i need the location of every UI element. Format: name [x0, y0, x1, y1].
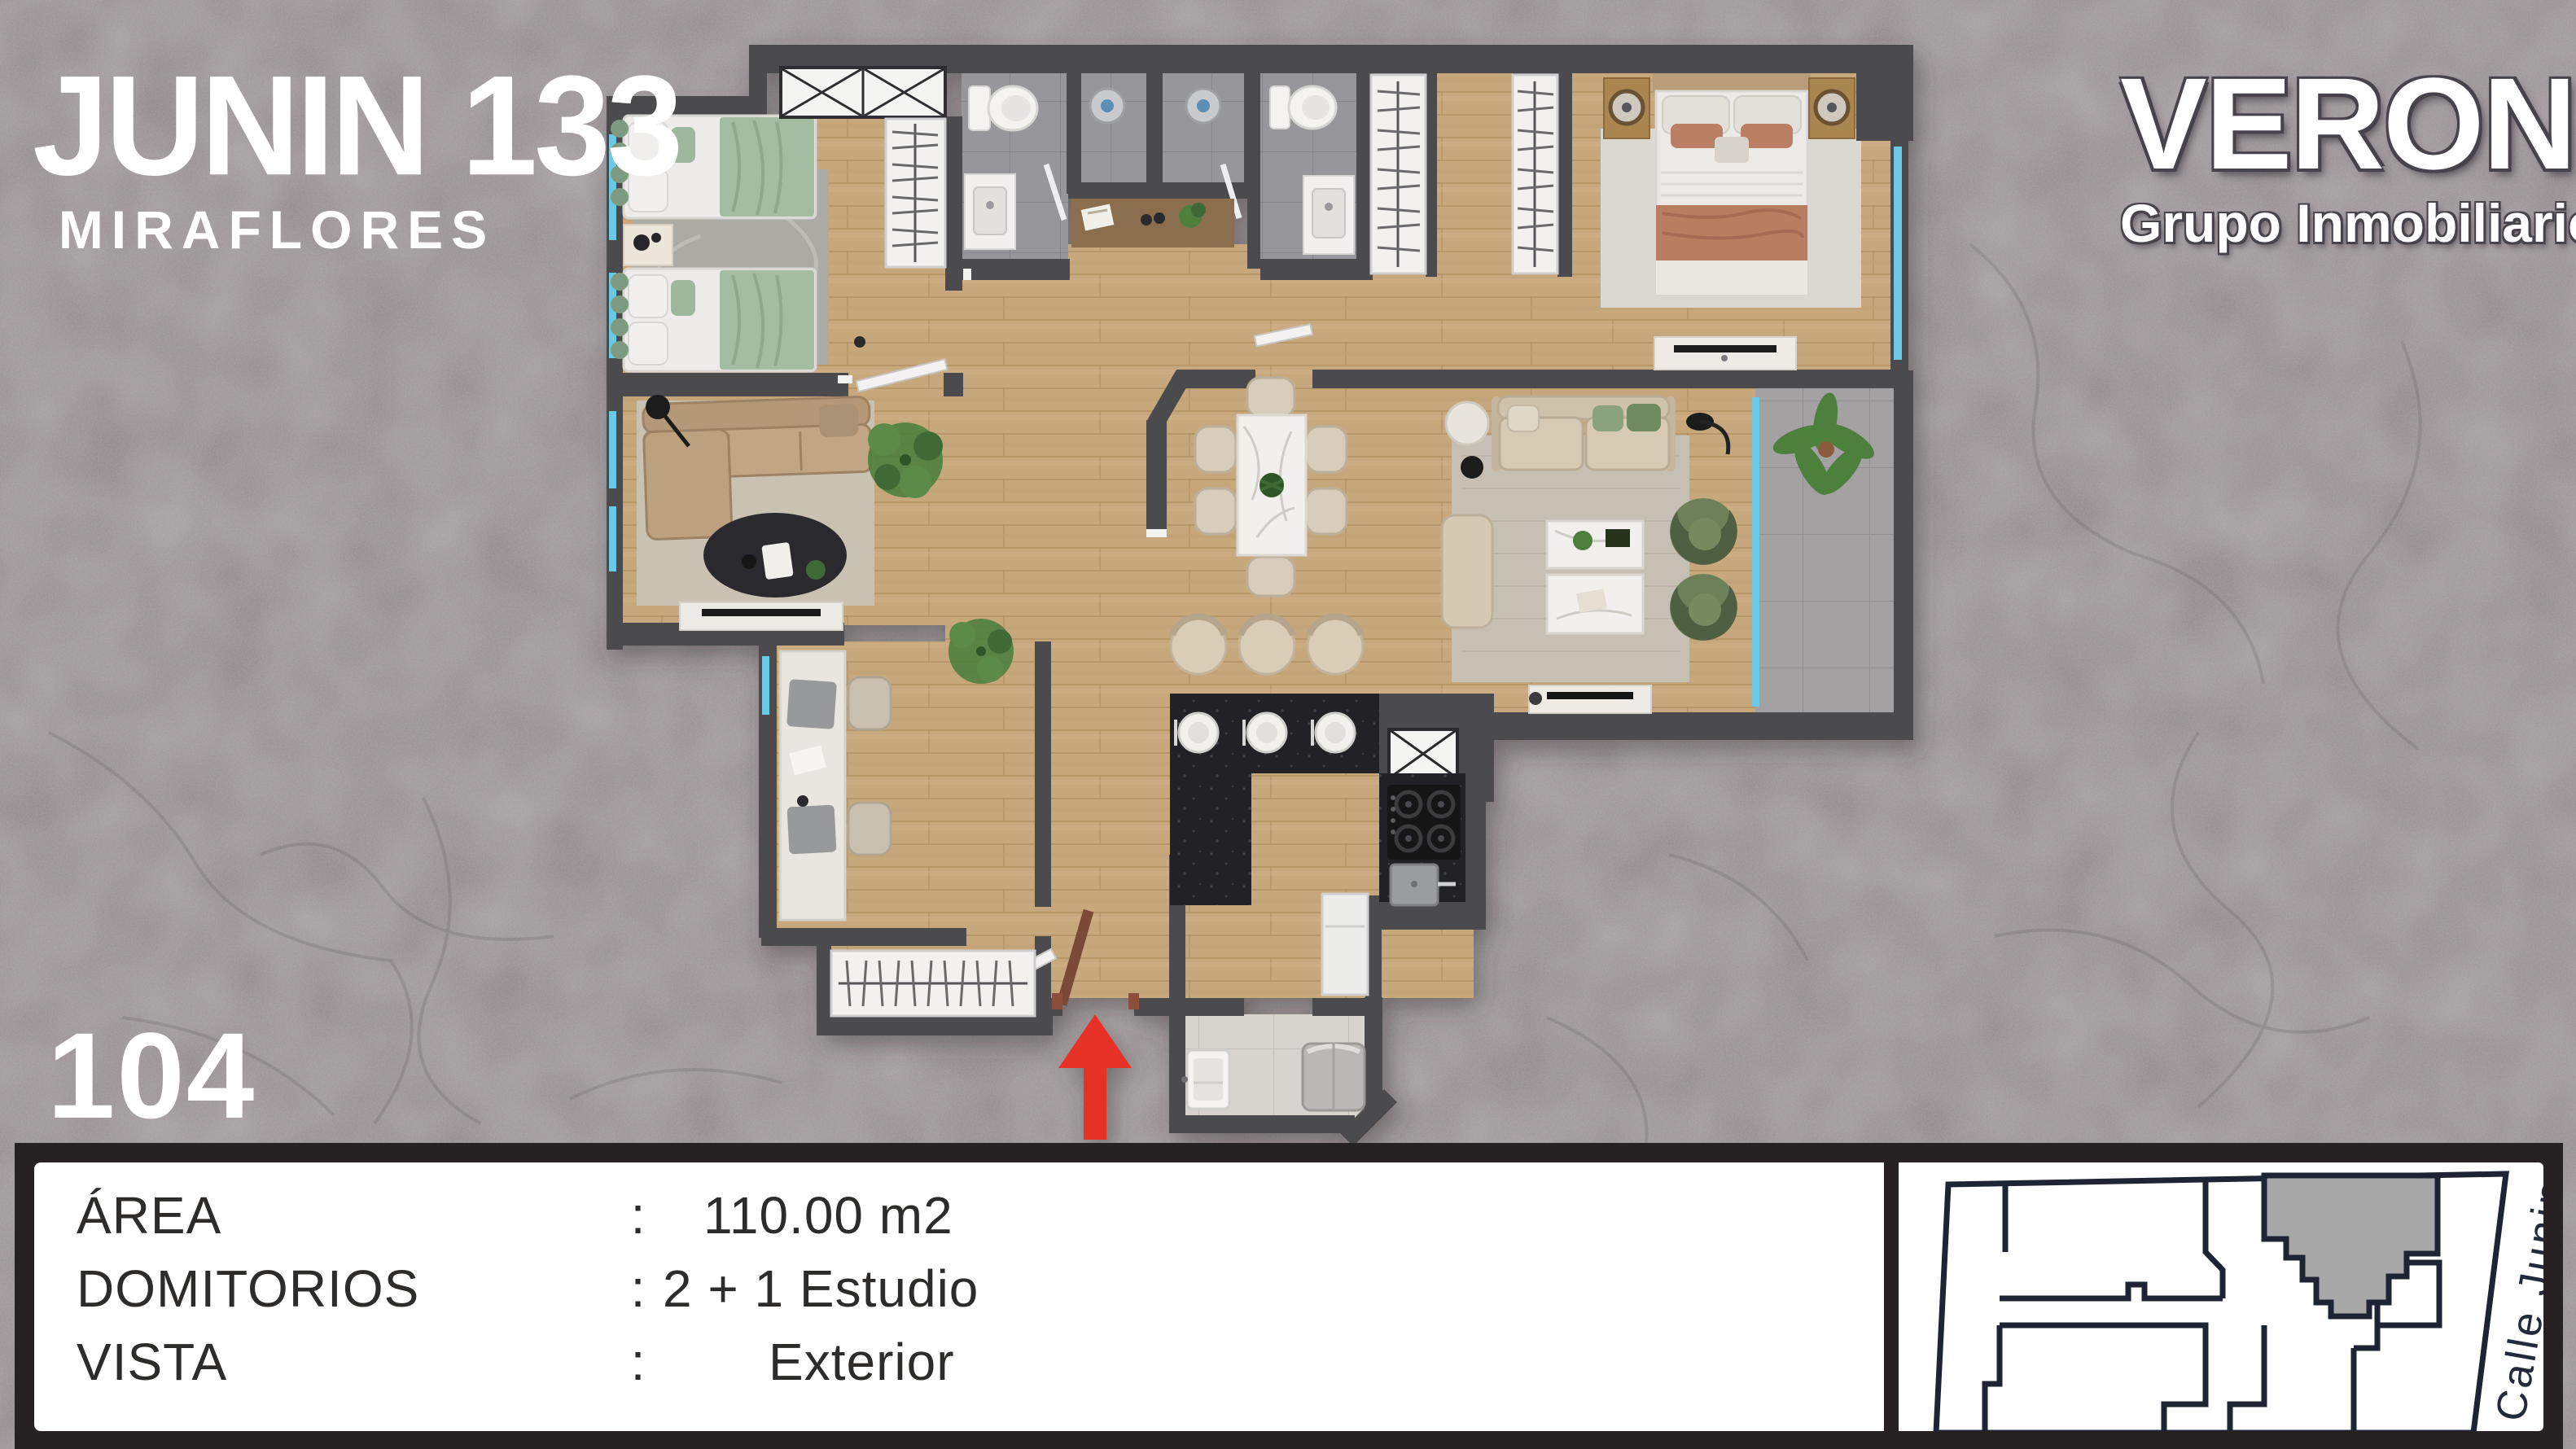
terrace-glass-door [1752, 397, 1759, 707]
dining-chair [1247, 557, 1295, 596]
stove-icon [1387, 785, 1461, 860]
washing-machine [1303, 1044, 1365, 1110]
detail-separator: : [614, 1185, 663, 1245]
fridge [1322, 894, 1368, 995]
coat-closet [831, 951, 1035, 1016]
project-location: MIRAFLORES [33, 199, 521, 260]
unit-number: 104 [47, 1005, 256, 1146]
detail-value: 110.00 m2 [703, 1185, 953, 1245]
keyplan-drawing: Calle Junin [1899, 1162, 2543, 1431]
place-setting [1176, 713, 1355, 752]
detail-value: 2 + 1 Estudio [663, 1259, 979, 1319]
dining-chair [1195, 488, 1236, 534]
toilet-icon [969, 86, 1037, 130]
sofa [1492, 396, 1676, 471]
tv-console [680, 602, 843, 630]
coffee-table [1547, 521, 1643, 633]
bedroom-wardrobe [781, 68, 945, 117]
info-panel: ÁREA : 110.00 m2 DOMITORIOS : 2 + 1 Estu… [34, 1162, 1884, 1431]
shower-head-icon [1090, 89, 1124, 123]
detail-row-area: ÁREA : 110.00 m2 [77, 1185, 979, 1259]
detail-label: DOMITORIOS [77, 1259, 614, 1319]
project-logo: JUNIN 133 MIRAFLORES [33, 57, 521, 260]
keyplan-unit-highlight [2264, 1175, 2438, 1316]
side-table [1446, 402, 1488, 444]
nightstand [1604, 78, 1649, 138]
company-logo: VERONÉS Grupo Inmobiliario [2120, 59, 2527, 254]
company-tagline: Grupo Inmobiliario [2120, 192, 2527, 254]
dressing-niche [1071, 199, 1234, 247]
master-window [1894, 147, 1902, 360]
detail-row-bedrooms: DOMITORIOS : 2 + 1 Estudio [77, 1259, 979, 1332]
dining-table [1238, 415, 1306, 555]
bath-vanity [965, 174, 1015, 249]
desk-chair [848, 677, 891, 729]
tv-console [1529, 685, 1651, 713]
master-bed [1653, 73, 1811, 295]
toilet-icon [1270, 86, 1336, 129]
info-panel-frame: ÁREA : 110.00 m2 DOMITORIOS : 2 + 1 Estu… [15, 1143, 2563, 1449]
detail-label: ÁREA [77, 1185, 614, 1245]
company-name: VERONÉS [2120, 59, 2527, 189]
detail-label: VISTA [77, 1332, 614, 1392]
dining-chair [1195, 427, 1236, 472]
tv-console [1654, 337, 1796, 370]
street-label: Calle Junin [2487, 1175, 2543, 1425]
detail-separator: : [614, 1259, 663, 1319]
keyplan: Calle Junin [1899, 1162, 2543, 1431]
desk-chair [848, 803, 891, 855]
bedroom-closet-rack [886, 119, 945, 267]
plant-icon [948, 619, 1014, 684]
bar-stool [1171, 616, 1226, 674]
unit-details: ÁREA : 110.00 m2 DOMITORIOS : 2 + 1 Estu… [77, 1185, 979, 1405]
coffee-table [703, 513, 847, 598]
detail-value: Exterior [769, 1332, 955, 1392]
dining-chair [1306, 488, 1347, 534]
ottoman [1442, 515, 1492, 628]
shaft-box [1389, 729, 1457, 778]
bar-stool [1239, 616, 1295, 674]
bath-vanity [1303, 176, 1354, 254]
bar-stool [1308, 616, 1363, 674]
project-name: JUNIN 133 [33, 55, 521, 197]
laundry-sink [1181, 1050, 1229, 1109]
nightstand [1809, 78, 1855, 138]
detail-row-view: VISTA : Exterior [77, 1332, 979, 1405]
detail-separator: : [614, 1332, 663, 1392]
twin-bed [611, 269, 816, 371]
shower-head-icon [1186, 89, 1220, 123]
dining-chair [1247, 378, 1295, 417]
dining-chair [1306, 427, 1347, 472]
